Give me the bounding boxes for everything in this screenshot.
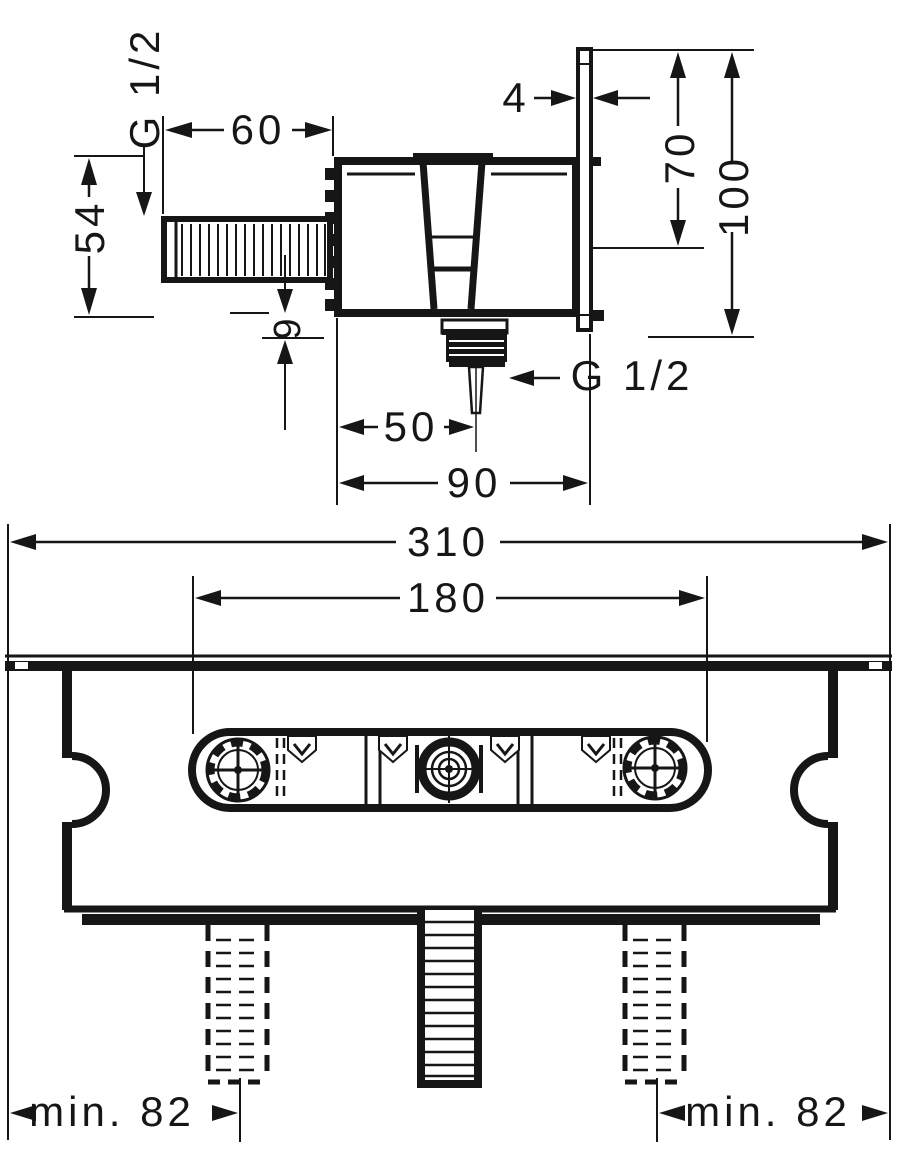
flange-plate <box>5 656 892 671</box>
arrow-left-icon <box>10 534 36 550</box>
dim-90-label: 90 <box>447 459 502 506</box>
arrow-right-icon <box>551 90 576 106</box>
dim-54-label: 54 <box>66 200 113 255</box>
dim-70-label: 70 <box>656 130 703 185</box>
dim-g12-inlet-label: G 1/2 <box>121 27 168 150</box>
arrow-down-icon <box>724 309 740 335</box>
arrow-left-icon <box>659 1105 685 1121</box>
screw-left <box>207 739 269 801</box>
arrow-right-icon <box>679 590 705 606</box>
dim-100: 100 <box>648 52 757 337</box>
dim-g12-outlet: G 1/2 <box>509 352 693 399</box>
arrow-left-icon <box>509 370 534 386</box>
threaded-rod-left <box>208 925 267 1082</box>
arrow-up-icon <box>724 52 740 78</box>
arrow-right-icon <box>563 475 588 491</box>
arrow-up-icon <box>81 158 97 185</box>
dim-9-label: 9 <box>267 314 309 339</box>
outlet-thread <box>442 320 507 413</box>
arrow-down-icon <box>136 192 152 216</box>
dim-180-label: 180 <box>407 574 489 621</box>
inlet-pipe <box>164 219 330 280</box>
threaded-rod-right <box>625 925 684 1082</box>
dim-310-label: 310 <box>407 518 489 565</box>
dim-4-label: 4 <box>502 74 529 121</box>
valve-body <box>325 153 576 313</box>
dim-310: 310 <box>10 518 888 565</box>
arrow-left-icon <box>339 419 364 435</box>
top-view: 310 180 min. 82 min. 82 <box>5 518 892 1142</box>
dim-60: 60 <box>163 106 333 214</box>
body-top-tab <box>413 153 493 163</box>
dim-g12-inlet: G 1/2 <box>121 27 168 216</box>
arrow-down-icon <box>81 288 97 315</box>
arrow-left-icon <box>593 90 618 106</box>
threaded-rod-center <box>421 910 478 1084</box>
side-view: G 1/2 60 54 9 <box>66 27 757 506</box>
arrow-right-icon <box>862 534 888 550</box>
mounting-slot <box>192 732 708 808</box>
wall-plate <box>578 49 604 330</box>
dim-60-label: 60 <box>231 106 286 153</box>
dim-min82-right: min. 82 <box>657 1078 888 1142</box>
pipe-stub-bottom <box>591 310 604 321</box>
arrow-left-icon <box>339 475 364 491</box>
wall-notch-right <box>794 756 828 824</box>
screw-right <box>624 737 686 799</box>
pipe-stub-top <box>591 157 601 166</box>
arrow-up-icon <box>277 340 293 364</box>
arrow-right-icon <box>305 122 332 138</box>
dim-180: 180 <box>195 574 705 621</box>
arrow-right-icon <box>862 1105 888 1121</box>
dim-100-label: 100 <box>710 155 757 237</box>
installation-drawing: G 1/2 60 54 9 <box>0 0 900 1170</box>
dim-50-label: 50 <box>384 403 439 450</box>
wall-notch-left <box>72 756 106 824</box>
technical-drawing-page: G 1/2 60 54 9 <box>0 0 900 1170</box>
arrow-left-icon <box>195 590 221 606</box>
arrow-up-icon <box>670 52 686 78</box>
arrow-right-icon <box>449 419 474 435</box>
arrow-down-icon <box>670 220 686 246</box>
dim-min82-right-label: min. 82 <box>685 1088 851 1135</box>
dim-54: 54 <box>66 156 154 317</box>
dim-min82-left-label: min. 82 <box>29 1088 195 1135</box>
arrow-down-icon <box>277 289 293 313</box>
arrow-left-icon <box>165 122 192 138</box>
dim-min82-left: min. 82 <box>10 1078 240 1142</box>
arrow-right-icon <box>212 1105 238 1121</box>
